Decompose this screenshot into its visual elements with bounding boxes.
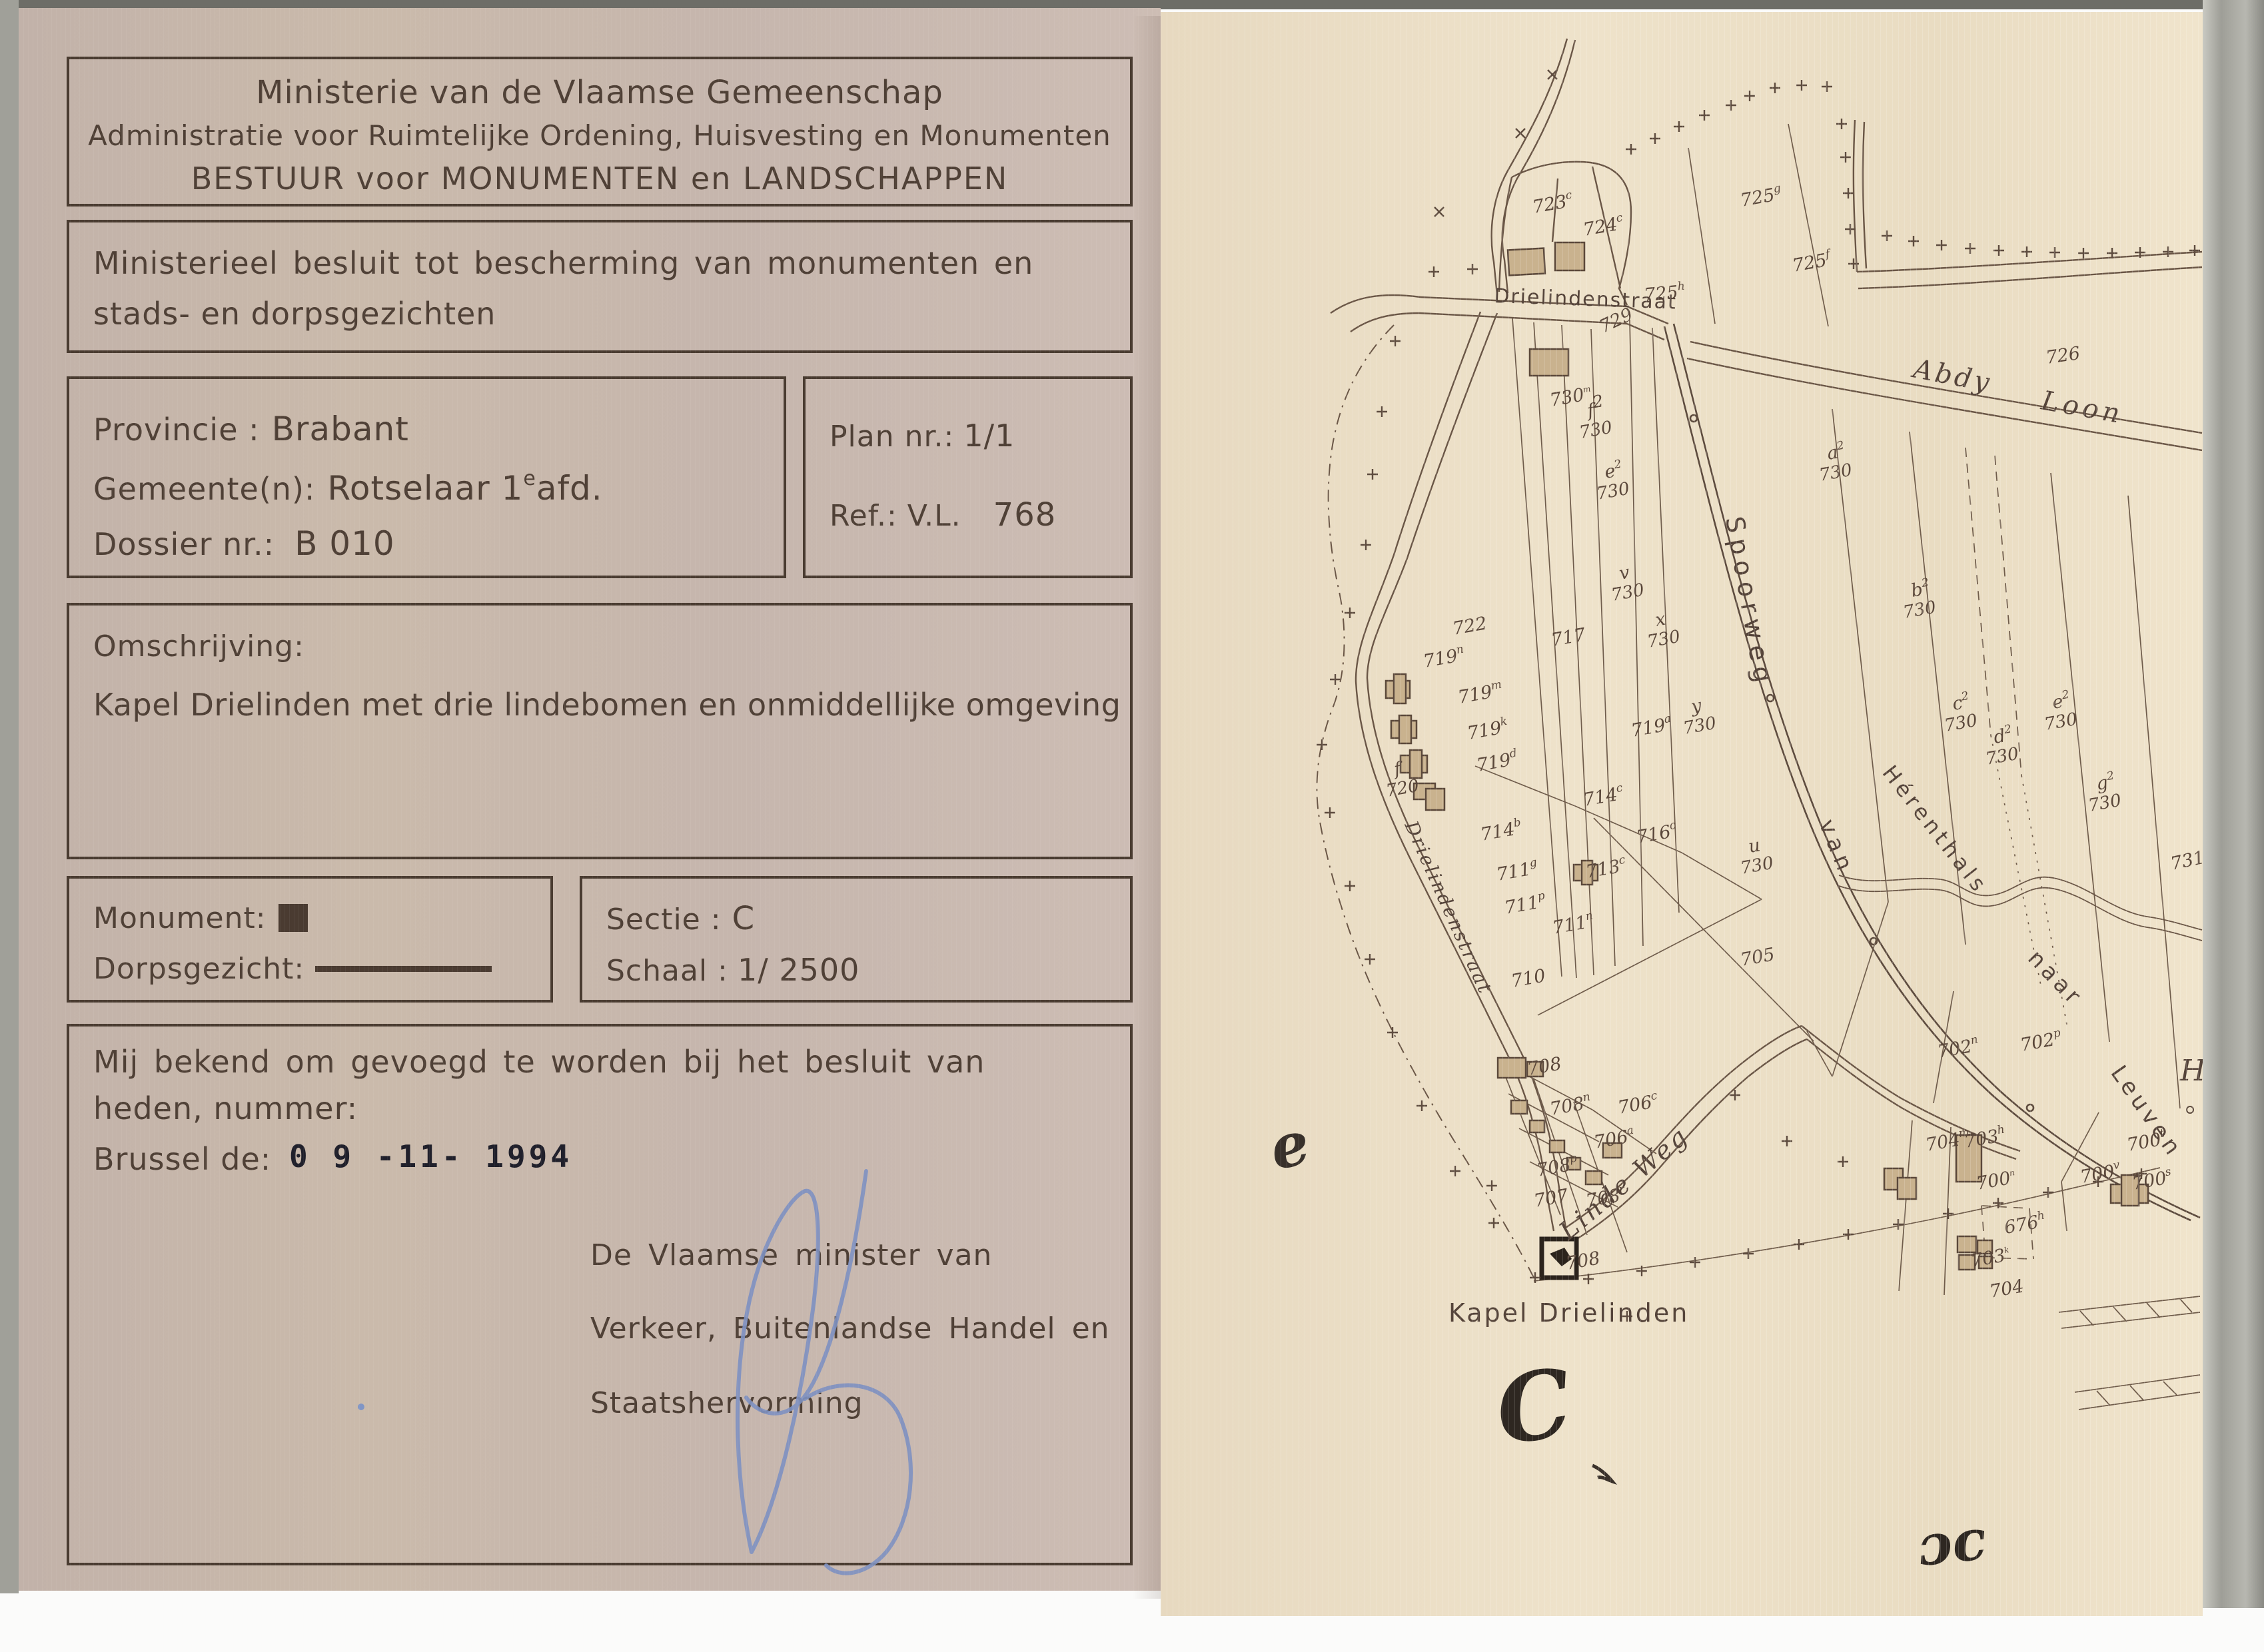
legend-box: Monument: Dorpsgezicht: (67, 876, 553, 1003)
parcel-label: 710 (1510, 965, 1547, 991)
parcel-label: v (1618, 562, 1631, 584)
boundary-cross-icon (1365, 954, 1375, 965)
boundary-cross-icon (1794, 1239, 1804, 1250)
minister-line3: Staatshervorming (590, 1386, 863, 1420)
parcel-number: 730 (1739, 853, 1775, 879)
parcel-label: 723c (1530, 189, 1575, 218)
dossier-value: B 010 (294, 524, 395, 563)
parcel-label: 719a (1629, 712, 1674, 741)
boundary-cross-icon (2021, 246, 2032, 257)
description-value: Kapel Drielinden met drie lindebomen en … (93, 687, 1121, 723)
ink-squiggle (1592, 1465, 1612, 1481)
railway-label-word: naar (2023, 945, 2089, 1012)
boundary-cross-icon (1893, 1219, 1904, 1230)
parcel-number: 730 (1682, 713, 1718, 739)
boundary-cross-icon (1428, 266, 1439, 277)
plan-ref-box: Plan nr.: 1/1 Ref.: V.L. 768 (803, 376, 1133, 578)
parcel-label: 706a (1592, 1124, 1636, 1153)
handwritten-mark: C (1490, 1348, 1578, 1467)
parcel-label: 708n (1548, 1090, 1592, 1120)
cadastral-map-page: 723c724c725h725g725f726729730mf2730e2730… (1161, 12, 2203, 1616)
location-box: Provincie : Brabant Gemeente(n): Rotsela… (67, 376, 786, 578)
parcel-label: g2 (2094, 769, 2117, 795)
ink-dot (358, 1404, 364, 1410)
boundary-cross-icon (1377, 406, 1387, 417)
schaal-label: Schaal : (606, 954, 728, 988)
parcel-label: 703h (1962, 1123, 2007, 1152)
boundary-cross-icon (1822, 81, 1832, 92)
province-value: Brabant (272, 410, 409, 448)
parcel-label: 705 (1739, 944, 1776, 970)
parcel-label: 719d (1474, 747, 1520, 776)
parcel-label: 704 (1988, 1276, 2025, 1302)
boundary-cross-icon (1650, 133, 1660, 144)
boundary-cross-icon (1993, 245, 2004, 256)
province-label: Provincie : (93, 412, 260, 448)
boundary-cross-icon (1782, 1136, 1792, 1146)
parcel-label: 714b (1478, 816, 1523, 845)
parcel-number: 730 (1943, 711, 1979, 736)
ref-label: Ref.: V.L. (830, 499, 961, 533)
parcel-label: 708 (1564, 1248, 1602, 1274)
ministry-title: Ministerie van de Vlaamse Gemeenschap (69, 74, 1130, 111)
minister-line2: Verkeer, Buitenlandse Handel en (590, 1312, 1110, 1346)
parcel-number: 730 (1610, 580, 1646, 606)
boundary-cross-icon (1390, 336, 1401, 346)
boundary-cross-icon (1486, 1180, 1497, 1191)
stream (1839, 875, 2202, 941)
header-box: Ministerie van de Vlaamse Gemeenschap Ad… (67, 57, 1133, 206)
boundary-cross-icon (1796, 80, 1807, 91)
parcel-label: 716c (1634, 819, 1679, 848)
parcel-label: 676h (2002, 1209, 2047, 1238)
boundary-cross-icon (1626, 144, 1636, 155)
dorpsgezicht-symbol-line (315, 966, 492, 972)
boundary-cross-icon (1674, 121, 1684, 132)
parcel-label: u (1747, 835, 1762, 857)
parcel-label: 719k (1465, 715, 1510, 744)
street-label: H (2179, 1054, 2203, 1088)
scan-left-band (0, 0, 19, 1593)
boundary-cross-icon (1882, 230, 1892, 241)
parcel-label: f2 (1583, 391, 1606, 422)
boundary-cross-icon (1743, 1248, 1754, 1259)
boundary-cross-icon (1361, 540, 1371, 550)
boundary-cross-icon (1843, 188, 1854, 199)
boundary-cross-icon (1770, 83, 1780, 93)
place-date-label: Brussel de: (93, 1141, 271, 1177)
parcel-label: e2 (2050, 688, 2071, 713)
monument-label: Monument: (93, 901, 267, 935)
boundary-cross-icon (1330, 674, 1341, 685)
ref-value: 768 (993, 496, 1057, 534)
cadastral-map: 723c724c725h725g725f726729730mf2730e2730… (1161, 12, 2203, 1616)
street-label: Loon (2038, 385, 2126, 430)
parcel-label: 707 (1532, 1185, 1570, 1212)
parcel-label: y (1689, 695, 1704, 717)
parcel-label: 725f (1790, 247, 1834, 276)
railway-label-word: Spoorweg (1720, 514, 1779, 691)
municipality-label: Gemeente(n): (93, 471, 315, 507)
boundary-cross-icon (1843, 1229, 1854, 1240)
minister-line1: De Vlaamse minister van (590, 1238, 992, 1272)
parcel-label: 711p (1502, 889, 1548, 919)
plan-label: Plan nr.: (830, 420, 954, 454)
monument-symbol-filled-square (279, 904, 308, 932)
parcel-number: 730 (2087, 791, 2123, 816)
minister-signature (19, 8, 1161, 1591)
parcel-label: 702n (1936, 1033, 1980, 1062)
date-stamp: 0 9 -11- 1994 (289, 1138, 572, 1174)
street-label: Kapel Drielinden (1448, 1298, 1689, 1328)
parcel-label: 708 (1526, 1053, 1563, 1079)
parcel-label: 731 (2169, 847, 2203, 875)
sectie-label: Sectie : (606, 903, 722, 937)
parcel-label: c2 (1950, 689, 1971, 715)
decree-form-page: Ministerie van de Vlaamse Gemeenschap Ad… (19, 8, 1161, 1591)
handwritten-mark: e (1264, 1107, 1316, 1184)
parcel-label: a2 (1825, 439, 1846, 464)
boundary-cross-icon (1488, 1218, 1499, 1228)
schaal-value: 1/ 2500 (738, 952, 859, 988)
boundary-cross-icon (1699, 110, 1710, 121)
parcel-number: 730 (1902, 598, 1938, 623)
boundary-cross-icon (1726, 100, 1736, 111)
boundary-cross-icon (1838, 1156, 1848, 1167)
scanned-decree-document: { "form": { "header": { "line1": "Minist… (0, 0, 2264, 1652)
section-scale-box: Sectie : C Schaal : 1/ 2500 (580, 876, 1133, 1003)
parcel-number: 730 (1595, 479, 1631, 504)
boundary-cross-icon (1387, 1027, 1398, 1038)
dossier-label: Dossier nr.: (93, 526, 275, 562)
parcel-label: 725g (1738, 182, 1784, 211)
boundary-cross-icon (1744, 91, 1755, 101)
boundary-cross-icon (1840, 152, 1851, 163)
boundary-cross-icon (1965, 243, 1976, 254)
parcel-label: d2 (1991, 723, 2014, 748)
decree-title-box: Ministerieel besluit tot bescherming van… (67, 220, 1133, 353)
railway-label-word: Hérenthals (1878, 761, 1993, 899)
parcel-label: 719m (1456, 678, 1504, 708)
boundary-cross-icon (1345, 608, 1355, 618)
boundary-cross-icon (1690, 1257, 1700, 1268)
boundary-cross-icon (2078, 248, 2089, 258)
boundary-cross-icon (2043, 1187, 2053, 1198)
parcel-number: 730 (1818, 460, 1854, 486)
boundary-cross-icon (1467, 264, 1478, 274)
parcel-number: 730 (2043, 709, 2079, 735)
boundary-cross-icon (1367, 469, 1378, 480)
boundary-cross-icon (1936, 240, 1947, 250)
municipality-value: Rotselaar 1eafd. (327, 467, 602, 508)
decree-title-line2: stads- en dorpsgezichten (93, 296, 496, 332)
boundary-cross-icon (1317, 739, 1327, 750)
parcel-label: 722 (1451, 613, 1488, 639)
boundary-cross-icon (2049, 247, 2060, 258)
boundary-cross-icon (1325, 807, 1335, 818)
dorpsgezicht-label: Dorpsgezicht: (93, 952, 304, 986)
parcel-label: 717 (1550, 624, 1588, 651)
boundary-cross-icon (1450, 1166, 1460, 1176)
sectie-value: C (732, 900, 756, 937)
boundary-cross-icon (2189, 245, 2200, 256)
signature-box: Mij bekend om gevoegd te worden bij het … (67, 1024, 1133, 1565)
boundary-cross-icon (1345, 881, 1355, 891)
parcel-number: 730 (1646, 627, 1682, 652)
decree-title-line1: Ministerieel besluit tot bescherming van… (93, 245, 1033, 281)
parcel-number: 730 (1984, 744, 2020, 769)
parcel-label: 719n (1421, 643, 1466, 672)
parcel-label: 711g (1494, 856, 1540, 885)
description-box: Omschrijving: Kapel Drielinden met drie … (67, 603, 1133, 859)
boundary-cross-icon (1908, 236, 1919, 246)
parcel-labels: 723c724c725h725g725f726729730mf2730e2730… (1385, 182, 2203, 1302)
boundary-cross-icon (1416, 1100, 1427, 1111)
parcel-label: 726 (2045, 343, 2081, 368)
parcel-number: 730 (1578, 418, 1614, 443)
plan-value: 1/1 (963, 418, 1015, 454)
boundary-cross-icon (2163, 246, 2173, 257)
boundary-cross-icon (1836, 119, 1847, 129)
parcel-label: 713c (1584, 853, 1628, 883)
scan-right-band (2203, 0, 2264, 1608)
note-line1: Mij bekend om gevoegd te worden bij het … (93, 1044, 985, 1080)
administration-title: Administratie voor Ruimtelijke Ordening,… (69, 119, 1130, 152)
parcel-label: 702p (2018, 1027, 2063, 1056)
handwritten-mark: ɔc (1915, 1506, 1989, 1579)
boundary-x-icon (1516, 129, 1525, 138)
note-line2: heden, nummer: (93, 1090, 358, 1126)
parcel-label: 706c (1616, 1089, 1660, 1118)
bureau-title: BESTUUR voor MONUMENTEN en LANDSCHAPPEN (69, 161, 1130, 197)
parcel-label: e2 (1602, 458, 1624, 483)
parcel-label: 714c (1581, 781, 1626, 811)
boundary-x-icon (1434, 207, 1444, 216)
description-label: Omschrijving: (93, 629, 304, 663)
boundary-cross-icon (1943, 1208, 1954, 1219)
